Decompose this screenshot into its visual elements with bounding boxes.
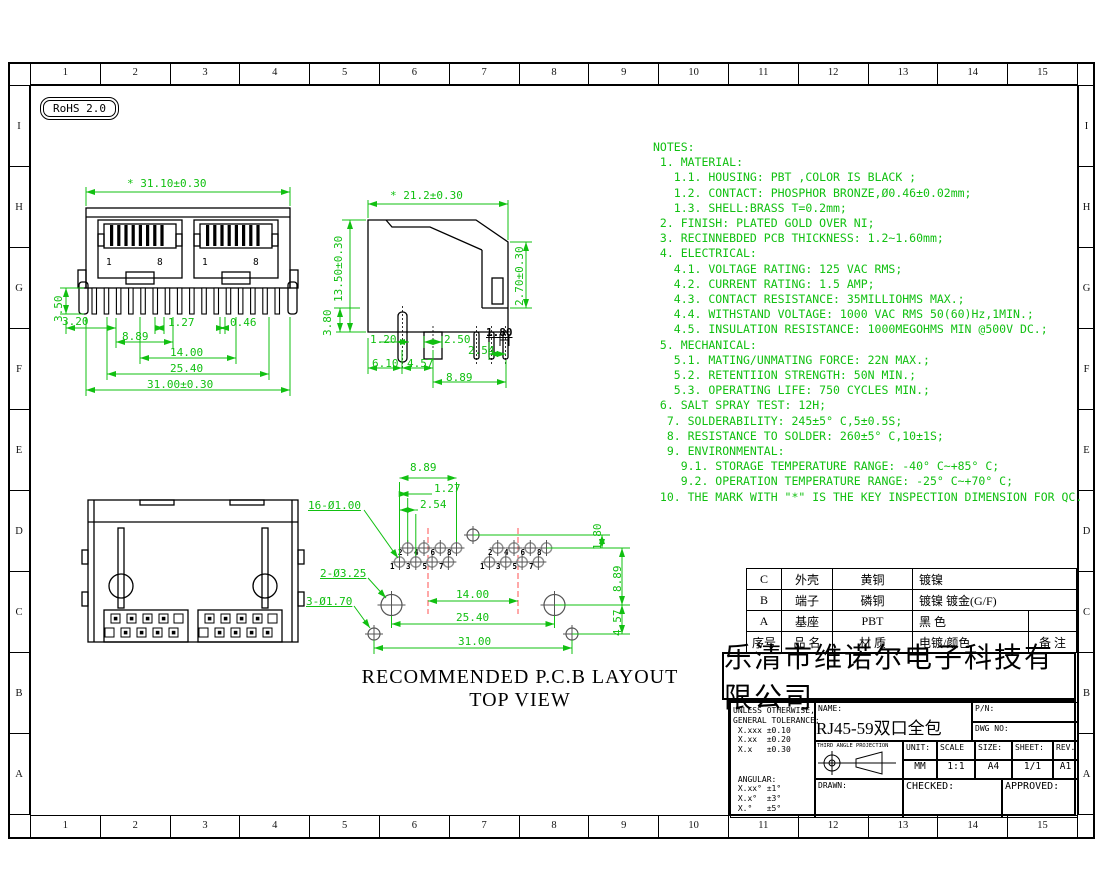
rohs-badge: RoHS 2.0 [40, 97, 119, 120]
note-line: 3. RECINNEBDED PCB THICKNESS: 1.2~1.60mm… [653, 231, 1065, 246]
note-line: 9. ENVIRONMENTAL: [653, 444, 1065, 459]
ruler-row-label: C [9, 572, 29, 653]
note-line: 4.3. CONTACT RESISTANCE: 35MILLIOHMS MAX… [653, 292, 1065, 307]
dwg-no-cell: DWG NO: [972, 722, 1078, 741]
name-label: NAME: [816, 703, 971, 714]
svg-text:5: 5 [423, 562, 428, 571]
note-line: 5.1. MATING/UNMATING FORCE: 22N MAX.; [653, 353, 1065, 368]
note-line: 1.3. SHELL:BRASS T=0.2mm; [653, 201, 1065, 216]
dim-label: 8.89 [612, 566, 624, 593]
notes-block: NOTES: 1. MATERIAL: 1.1. HOUSING: PBT ,C… [653, 140, 1065, 505]
rev-value: A1 [1054, 761, 1077, 772]
pcb-layout-view: 12 34 56 78 12 34 56 78 [306, 446, 640, 674]
tolerance-line: X.x° ±3° [733, 794, 812, 804]
top-view [78, 492, 310, 664]
checked-cell: CHECKED: [903, 779, 1002, 818]
dim-label: 2.54 [468, 345, 495, 357]
note-line: 1.2. CONTACT: PHOSPHOR BRONZE,Ø0.46±0.02… [653, 186, 1065, 201]
tolerance-line [733, 765, 812, 775]
svg-text:7: 7 [529, 562, 534, 571]
ruler-column-label: 6 [380, 63, 450, 84]
top-view-linework [78, 492, 310, 664]
caption-line-2: TOP VIEW [358, 689, 682, 712]
dim-label: 6.10 [372, 358, 399, 370]
dim-label: 8.89 [410, 462, 437, 474]
projection-label: THIRD ANGLE PROJECTION [816, 742, 902, 750]
ruler-column-label: 12 [799, 63, 869, 84]
size-label-cell: SIZE: [975, 741, 1012, 760]
note-line: 4.5. INSULATION RESISTANCE: 1000MEGOHMS … [653, 322, 1065, 337]
tolerance-line: X.xx° ±1° [733, 784, 812, 794]
ruler-column-label: 5 [310, 816, 380, 837]
svg-text:7: 7 [439, 562, 444, 571]
note-line: 10. THE MARK WITH "*" IS THE KEY INSPECT… [653, 490, 1065, 505]
ruler-column-label: 9 [589, 816, 659, 837]
ruler-column-label: 8 [520, 63, 590, 84]
ruler-right: IHGFEDCBA [1078, 85, 1095, 815]
ruler-column-label: 3 [171, 816, 241, 837]
dim-label: 4.57 [407, 358, 434, 370]
ruler-column-label: 4 [240, 816, 310, 837]
ruler-column-label: 10 [659, 63, 729, 84]
pcb-holes [365, 526, 581, 643]
dim-label: 25.40 [170, 363, 203, 375]
note-line: 7. SOLDERABILITY: 245±5° C,5±0.5S; [653, 414, 1065, 429]
mat-material: 黄铜 [833, 569, 913, 590]
ruler-row-label: H [9, 167, 29, 248]
scale-value-cell: 1:1 [937, 760, 975, 779]
ruler-row-label: B [9, 653, 29, 734]
ruler-row-label: E [9, 410, 29, 491]
sheet-label-cell: SHEET: [1012, 741, 1053, 760]
tolerance-line: X.xxx ±0.10 [733, 726, 812, 736]
dim-label: 14.00 [456, 589, 489, 601]
dim-label: 14.00 [170, 347, 203, 359]
ruler-row-label: B [1079, 653, 1094, 734]
tolerance-line: X.xx ±0.20 [733, 735, 812, 745]
ruler-column-label: 7 [450, 816, 520, 837]
tolerance-line: UNLESS OTHERWISE, [733, 706, 812, 716]
svg-text:4: 4 [414, 548, 419, 557]
note-line: 4.2. CURRENT RATING: 1.5 AMP; [653, 277, 1065, 292]
pcb-pin-numbers: 12 34 56 78 12 34 56 78 [390, 548, 542, 571]
mat-material: 磷铜 [833, 590, 913, 611]
note-line: 5.2. RETENTIION STRENGTH: 50N MIN.; [653, 368, 1065, 383]
scale-label-cell: SCALE [937, 741, 975, 760]
mat-name: 端子 [782, 590, 833, 611]
ruler-row-label: F [9, 329, 29, 410]
mat-no: B [747, 590, 782, 611]
pin-number-label: 1 [202, 257, 208, 268]
side-view-linework [330, 190, 542, 398]
port-contacts [110, 225, 260, 246]
note-line: 6. SALT SPRAY TEST: 12H; [653, 398, 1065, 413]
table-row: C 外壳 黄铜 镀镍 [747, 569, 1077, 590]
approved-label: APPROVED: [1003, 780, 1077, 793]
ruler-left: IHGFEDCBA [8, 85, 30, 815]
unit-value-cell: MM [903, 760, 937, 779]
ruler-column-label: 15 [1008, 63, 1077, 84]
tolerance-line: X.x ±0.30 [733, 745, 812, 755]
solder-pads [105, 614, 277, 637]
note-line: 4. ELECTRICAL: [653, 246, 1065, 261]
ruler-column-label: 13 [869, 816, 939, 837]
dim-label: 31.00 [458, 636, 491, 648]
note-line: 9.2. OPERATION TEMPERATURE RANGE: -25° C… [653, 474, 1065, 489]
ruler-column-label: 11 [729, 816, 799, 837]
pin-number-label: 1 [106, 257, 112, 268]
pin-number-label: 8 [253, 257, 259, 268]
ruler-column-label: 7 [450, 63, 520, 84]
tolerance-line: GENERAL TOLERANCE: [733, 716, 812, 726]
tolerance-line: X.° ±5° [733, 804, 812, 814]
pin-number-label: 8 [157, 257, 163, 268]
dim-label: 3.20 [62, 316, 89, 328]
mat-name: 基座 [782, 611, 833, 632]
note-line: 4.4. WITHSTAND VOLTAGE: 1000 VAC RMS 50(… [653, 307, 1065, 322]
table-row: A 基座 PBT 黑 色 [747, 611, 1077, 632]
side-view: * 21.2±0.30 13.50±0.30 3.80 2.70±0.30 1.… [330, 190, 542, 398]
note-line: 5. MECHANICAL: [653, 338, 1065, 353]
note-line: 8. RESISTANCE TO SOLDER: 260±5° C,10±1S; [653, 429, 1065, 444]
ruler-row-label: I [9, 86, 29, 167]
ruler-column-label: 5 [310, 63, 380, 84]
rohs-badge-label: RoHS 2.0 [43, 100, 116, 117]
note-line: NOTES: [653, 140, 1065, 155]
svg-text:2: 2 [398, 548, 403, 557]
ruler-column-label: 15 [1008, 816, 1077, 837]
hole-callout-small: 3-Ø1.70 [306, 596, 352, 608]
dim-label: 13.50±0.30 [333, 236, 345, 302]
hole-callout-pins: 16-Ø1.00 [308, 500, 361, 512]
unit-value: MM [904, 761, 936, 772]
ruler-column-label: 1 [31, 816, 101, 837]
dim-label: 2.54 [420, 499, 447, 511]
ruler-row-label: E [1079, 410, 1094, 491]
projection-cell: THIRD ANGLE PROJECTION [815, 741, 903, 779]
svg-text:1: 1 [480, 562, 485, 571]
ruler-row-label: G [9, 248, 29, 329]
svg-text:6: 6 [521, 548, 526, 557]
tolerance-block: UNLESS OTHERWISE,GENERAL TOLERANCE: X.xx… [730, 702, 815, 818]
svg-text:8: 8 [447, 548, 452, 557]
note-line: 4.1. VOLTAGE RATING: 125 VAC RMS; [653, 262, 1065, 277]
engineering-drawing-sheet: { "drawing": { "rohs_badge": "RoHS 2.0",… [0, 0, 1100, 895]
dim-label: * 31.10±0.30 [127, 178, 206, 190]
rev-value-cell: A1 [1053, 760, 1078, 779]
ruler-row-label: A [9, 734, 29, 814]
checked-label: CHECKED: [904, 780, 1001, 793]
part-name: RJ45-59双口全包 [816, 719, 942, 738]
ruler-column-label: 3 [171, 63, 241, 84]
shield-legs [92, 288, 280, 314]
tolerance-line [733, 755, 812, 765]
svg-text:3: 3 [496, 562, 501, 571]
unit-label-cell: UNIT: [903, 741, 937, 760]
svg-text:4: 4 [504, 548, 509, 557]
dim-label: 4.57 [612, 610, 624, 637]
dim-label: * 21.2±0.30 [390, 190, 463, 202]
svg-text:6: 6 [431, 548, 436, 557]
dim-label: 31.00±0.30 [147, 379, 213, 391]
dim-label: 1.27 [434, 483, 461, 495]
dim-label: 1.80 [592, 524, 604, 551]
size-value: A4 [976, 761, 1011, 772]
hole-callout-big: 2-Ø3.25 [320, 568, 366, 580]
dim-label-key: 1.80 [486, 327, 513, 339]
mat-plating: 黑 色 [913, 611, 1029, 632]
ruler-row-label: H [1079, 167, 1094, 248]
ruler-row-label: I [1079, 86, 1094, 167]
drawn-cell: DRAWN: [815, 779, 903, 818]
note-line: 1. MATERIAL: [653, 155, 1065, 170]
svg-text:5: 5 [513, 562, 518, 571]
approved-cell: APPROVED: [1002, 779, 1078, 818]
dim-label: 0.46 [230, 317, 257, 329]
svg-text:1: 1 [390, 562, 395, 571]
pn-cell: P/N: [972, 702, 1078, 722]
ruler-column-label: 10 [659, 816, 729, 837]
ruler-bottom: 123456789101112131415 [30, 815, 1078, 838]
mat-remark [1029, 611, 1077, 632]
mat-plating: 镀镍 镀金(G/F) [913, 590, 1077, 611]
rev-label-cell: REV. [1053, 741, 1078, 760]
dim-label: 2.70±0.30 [514, 246, 526, 306]
part-name-cell: NAME: RJ45-59双口全包 [815, 702, 972, 741]
size-value-cell: A4 [975, 760, 1012, 779]
ruler-row-label: F [1079, 329, 1094, 410]
ruler-row-label: D [9, 491, 29, 572]
dim-label: 8.89 [446, 372, 473, 384]
size-label: SIZE: [976, 742, 1011, 753]
caption-line-1: RECOMMENDED P.C.B LAYOUT [358, 666, 682, 689]
dim-label: 1.20 [370, 334, 397, 346]
dim-label: 2.50 [444, 334, 471, 346]
note-line: 2. FINISH: PLATED GOLD OVER NI; [653, 216, 1065, 231]
company-name: 乐清市维诺尔电子科技有限公司 [722, 652, 1076, 700]
note-line: 5.3. OPERATING LIFE: 750 CYCLES MIN.; [653, 383, 1065, 398]
ruler-column-label: 8 [520, 816, 590, 837]
dim-label: 8.89 [122, 331, 149, 343]
mat-material: PBT [833, 611, 913, 632]
dim-label: 3.80 [322, 310, 334, 337]
rev-label: REV. [1054, 742, 1077, 753]
drawn-label: DRAWN: [816, 780, 902, 791]
ruler-column-label: 13 [869, 63, 939, 84]
front-view: 1 8 1 8 * 31.10±0.30 3.50 [52, 176, 324, 422]
title-block: UNLESS OTHERWISE,GENERAL TOLERANCE: X.xx… [728, 700, 1076, 816]
note-line: 9.1. STORAGE TEMPERATURE RANGE: -40° C~+… [653, 459, 1065, 474]
ruler-top: 123456789101112131415 [30, 62, 1078, 85]
svg-text:2: 2 [488, 548, 493, 557]
ruler-column-label: 2 [101, 816, 171, 837]
ruler-column-label: 9 [589, 63, 659, 84]
dim-label: 1.27 [168, 317, 195, 329]
ruler-column-label: 14 [938, 816, 1008, 837]
scale-label: SCALE [938, 742, 974, 753]
sheet-value: 1/1 [1013, 761, 1052, 772]
ruler-column-label: 1 [31, 63, 101, 84]
svg-text:8: 8 [537, 548, 542, 557]
sheet-label: SHEET: [1013, 742, 1052, 753]
dwg-no-label: DWG NO: [973, 723, 1077, 734]
dim-label: 25.40 [456, 612, 489, 624]
mat-plating: 镀镍 [913, 569, 1077, 590]
ruler-column-label: 14 [938, 63, 1008, 84]
ruler-column-label: 12 [799, 816, 869, 837]
ruler-column-label: 11 [729, 63, 799, 84]
pcb-layout-caption: RECOMMENDED P.C.B LAYOUT TOP VIEW [358, 666, 682, 712]
sheet-value-cell: 1/1 [1012, 760, 1053, 779]
tolerance-line: ANGULAR: [733, 775, 812, 785]
pn-label: P/N: [973, 703, 1077, 714]
mat-name: 外壳 [782, 569, 833, 590]
note-line: 1.1. HOUSING: PBT ,COLOR IS BLACK ; [653, 170, 1065, 185]
ruler-row-label: C [1079, 572, 1094, 653]
ruler-row-label: A [1079, 734, 1094, 814]
ruler-column-label: 6 [380, 816, 450, 837]
mat-no: C [747, 569, 782, 590]
third-angle-projection-icon [816, 750, 900, 776]
svg-text:3: 3 [406, 562, 411, 571]
table-row: B 端子 磷铜 镀镍 镀金(G/F) [747, 590, 1077, 611]
ruler-column-label: 4 [240, 63, 310, 84]
ruler-column-label: 2 [101, 63, 171, 84]
mat-no: A [747, 611, 782, 632]
unit-label: UNIT: [904, 742, 936, 753]
scale-value: 1:1 [938, 761, 974, 772]
ruler-row-label: G [1079, 248, 1094, 329]
